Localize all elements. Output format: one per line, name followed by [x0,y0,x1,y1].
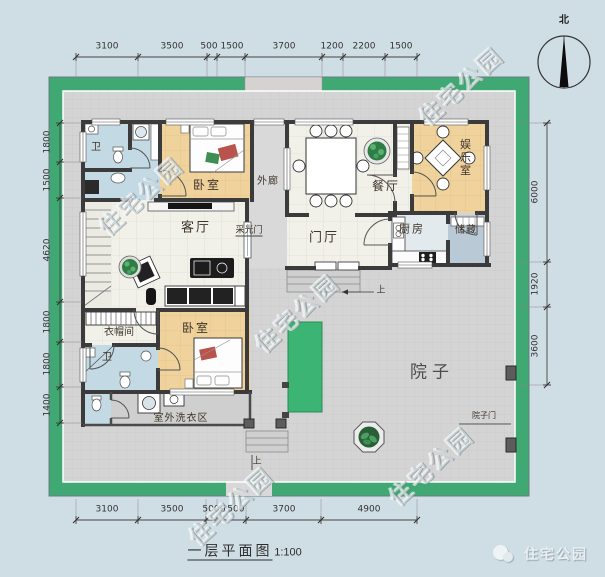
room-label-recreation: 娱乐室 [459,139,470,178]
room-label-light-door: 采光门 [235,226,262,237]
bed-icon-bottom [185,338,242,388]
dim-left-2: 1500 [44,169,53,192]
dim-top-5: 3700 [273,43,296,52]
room-label-courtyard: 院子 [410,364,454,381]
pantry-shelf-icon [397,127,409,169]
room-label-bedroom-bottom: 卧室 [182,322,210,334]
dim-right-1: 6000 [532,181,541,204]
courtyard-grass [282,322,322,418]
dim-left-3: 4620 [44,239,53,262]
dim-bottom-3: 500 [202,506,219,515]
dim-right-3: 3600 [532,335,541,358]
logo-icon [493,543,515,565]
dim-top-2: 3500 [161,43,184,52]
dim-bottom-5: 3700 [273,506,296,515]
wardrobe-icon [86,312,156,325]
planter-icon [354,422,384,452]
dim-top-6: 1200 [321,43,344,52]
room-label-kitchen: 厨房 [399,225,425,236]
dim-top-4: 1500 [221,43,244,52]
north-label: 北 [559,16,569,26]
dim-top-8: 1500 [390,43,413,52]
floor-plan-page: 3100 3500 500 1500 3700 1200 2200 1500 3… [0,0,605,577]
north-arrow-icon [538,36,590,88]
room-label-bath-bottom: 卫 [102,353,112,363]
drawing-scale: 1:100 [274,548,302,559]
room-label-laundry: 室外洗衣区 [154,414,209,424]
room-label-storage: 储藏 [455,226,477,236]
dim-top-3: 500 [200,43,217,52]
dim-bottom-4: 1500 [222,506,245,515]
dim-bottom-1: 3100 [96,506,119,515]
dim-bottom-6: 4900 [358,506,381,515]
room-label-living: 客厅 [181,221,211,234]
dim-left-4: 1800 [44,311,53,334]
room-label-bath-top: 卫 [91,143,103,153]
room-label-dining: 餐厅 [372,180,400,192]
dim-left-5: 1800 [44,353,53,376]
room-label-cloakroom: 衣帽间 [104,328,134,338]
label-courtyard-gate: 院子门 [472,412,496,420]
dim-right-2: 1920 [532,273,541,296]
dim-top-7: 2200 [353,43,376,52]
label-up-entry: 上 [376,286,385,295]
floor-plan-drawing [0,0,605,577]
room-label-corridor: 外廊 [257,177,279,187]
dim-left-6: 1400 [44,394,53,417]
dim-top-1: 3100 [96,43,119,52]
drawing-title: 一层平面图 [188,544,273,561]
room-label-foyer: 门厅 [309,231,339,244]
bed-icon-top [181,124,244,172]
room-label-bedroom-top: 卧室 [193,179,221,191]
plant-icon-dining [364,138,390,164]
plant-icon-living [119,256,141,278]
dim-left-1: 1800 [44,131,53,154]
logo-text: 住宅公园 [524,547,588,561]
dim-bottom-2: 3500 [161,506,184,515]
label-up-yard: 上 [252,457,261,466]
